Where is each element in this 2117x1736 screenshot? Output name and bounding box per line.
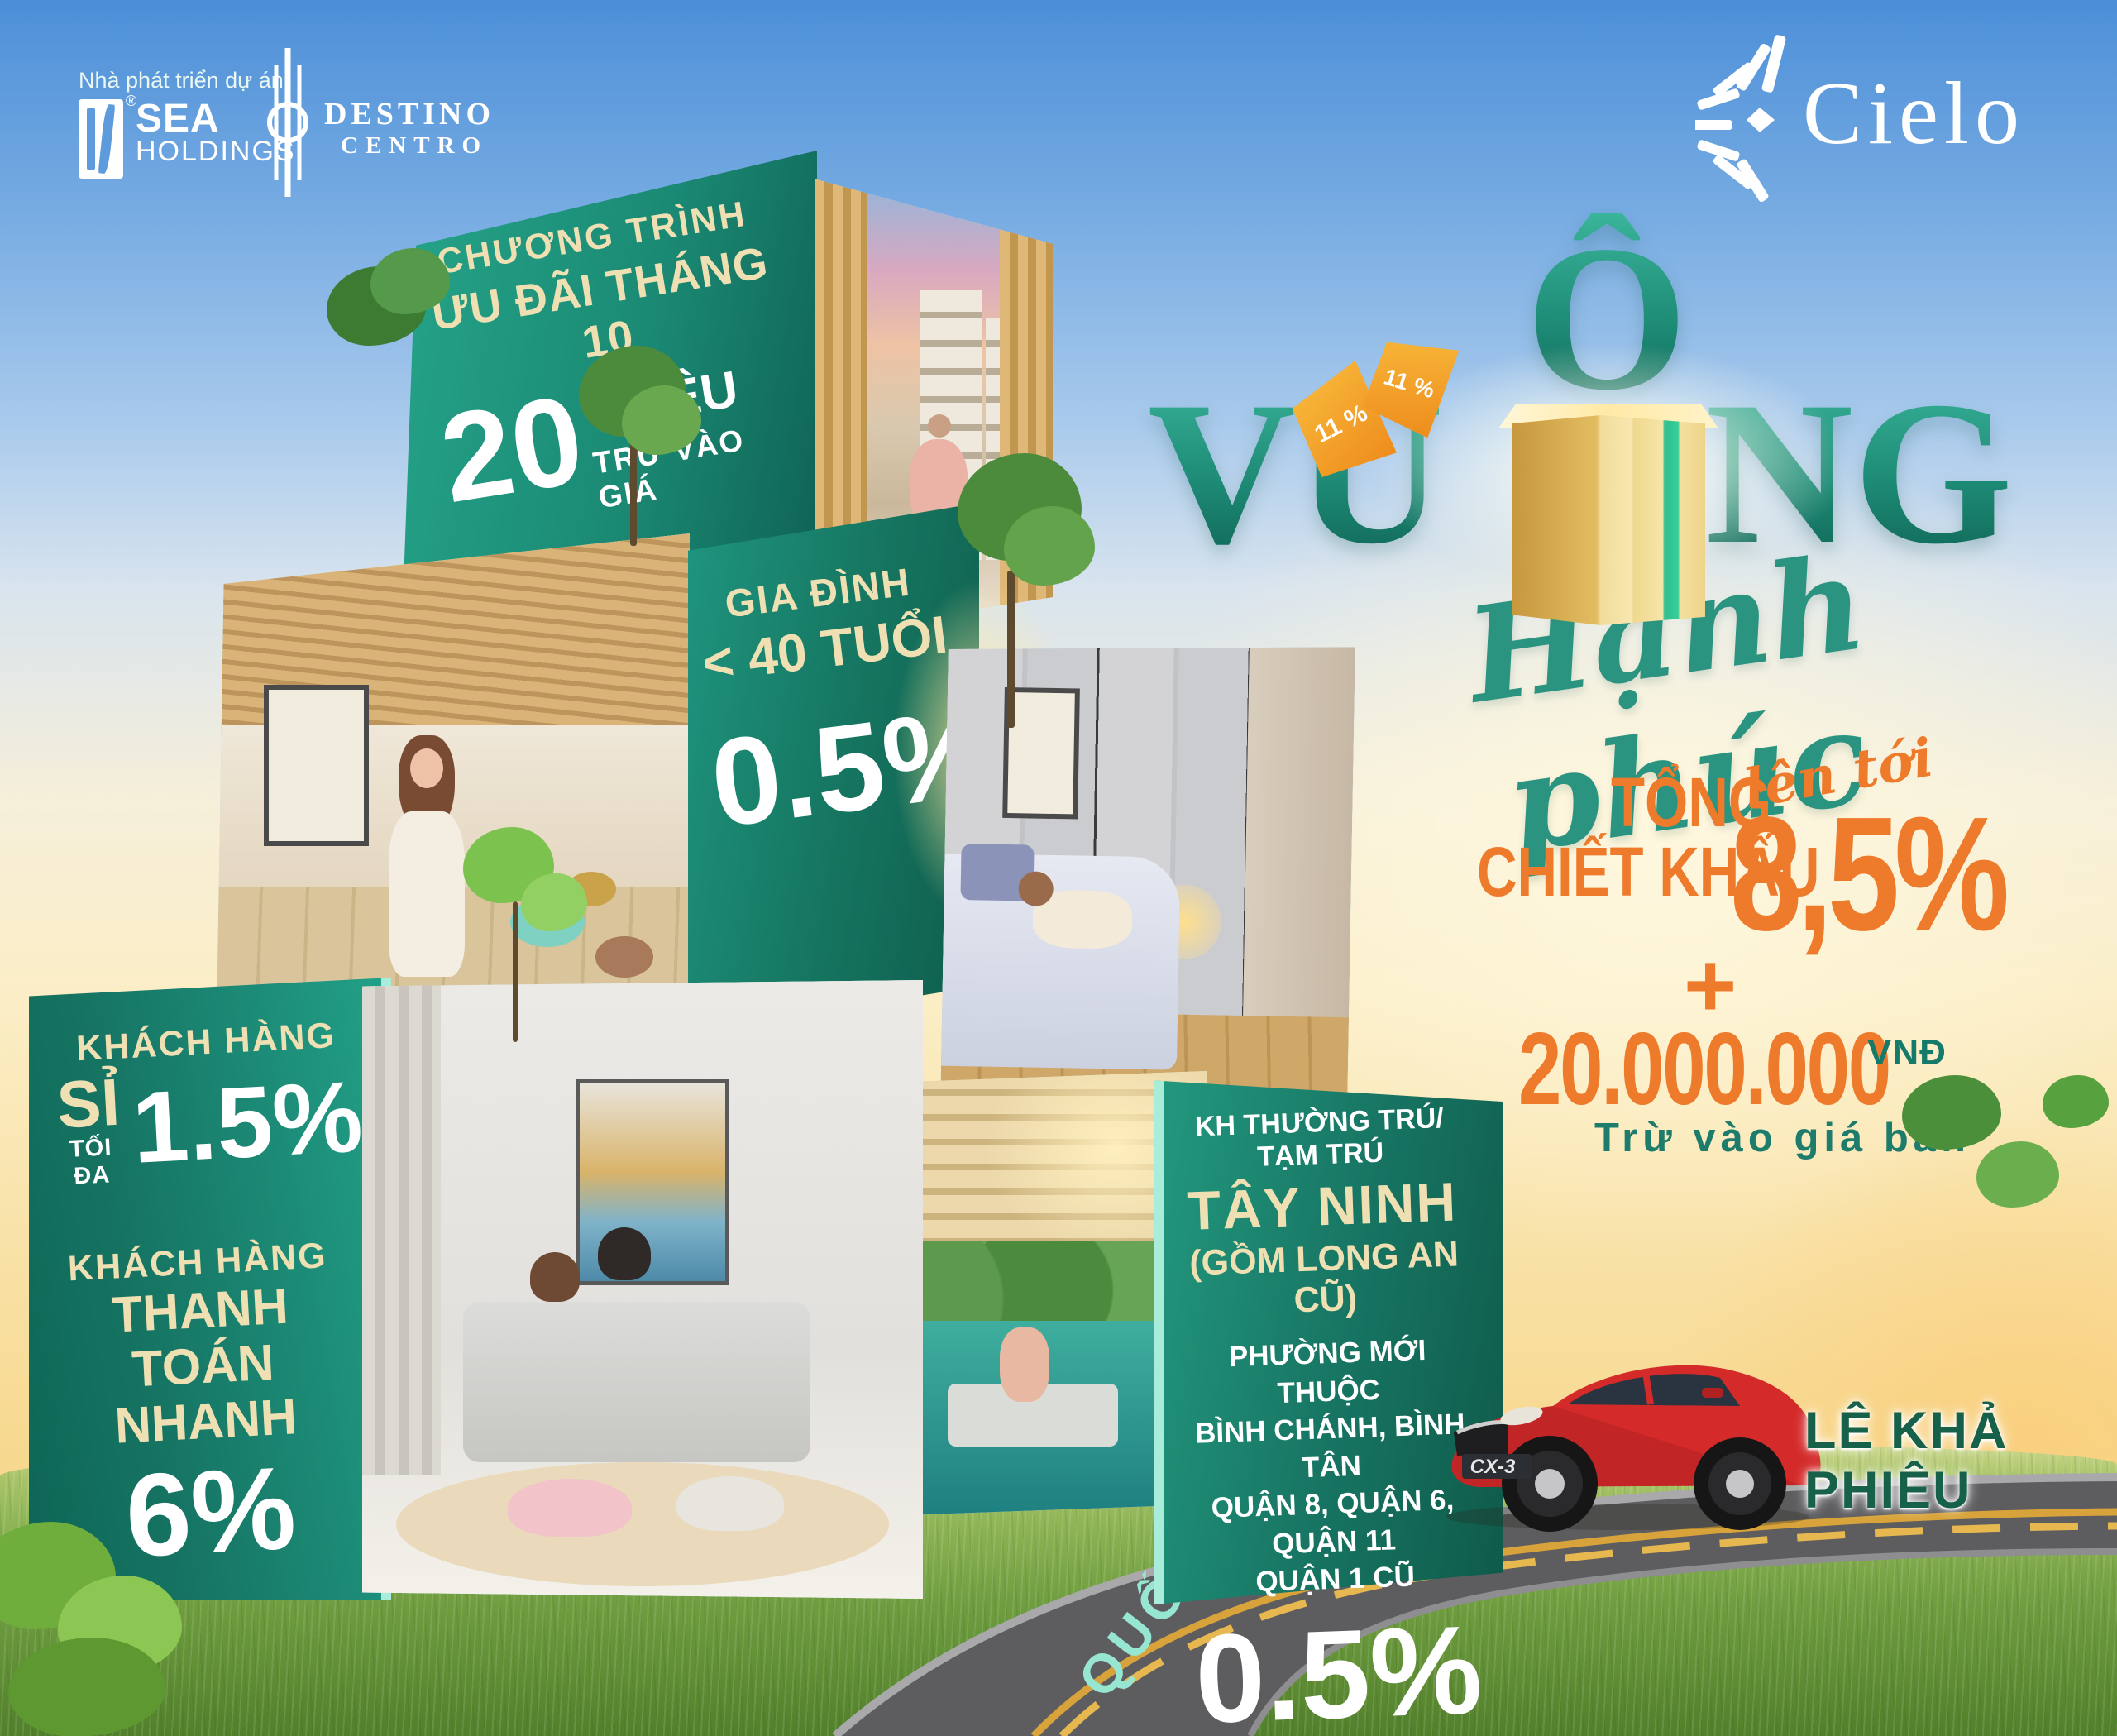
- sapling-trunk: [513, 901, 518, 1042]
- bedroom-photo: [940, 640, 1355, 1111]
- rug: [396, 1462, 890, 1586]
- son-figure: [676, 1476, 784, 1531]
- red-car: [1429, 1308, 1826, 1540]
- car-model-badge: CX-3: [1457, 1456, 1528, 1479]
- promo-box-family-text: GIA ĐÌNH < 40 TUỔI 0.5%: [688, 554, 974, 845]
- fast-payment-line2: THANH TOÁN: [58, 1275, 345, 1401]
- living-curtain: [362, 980, 441, 1475]
- tree-trunk: [1007, 571, 1015, 728]
- developer-label: Nhà phát triển dự án: [79, 68, 284, 93]
- promo-poster: Nhà phát triển dự án ® SEA HOLDINGS DEST…: [0, 0, 2117, 1736]
- woman-with-laptop: [377, 735, 476, 983]
- wholesale-percent: 1.5%: [130, 1072, 364, 1174]
- destino-subname: CENTRO: [341, 132, 488, 160]
- sea-holdings-logo-icon: [79, 99, 123, 179]
- street-name-label: LÊ KHẢ PHIÊU: [1804, 1401, 2117, 1520]
- destino-centro-logo-icon: [266, 48, 309, 197]
- family-percent: 0.5%: [705, 691, 974, 846]
- destino-name: DESTINO: [324, 96, 495, 132]
- lobby-photo: [217, 533, 690, 1038]
- father-figure: [598, 1227, 651, 1280]
- cielo-logo-icon: [1695, 35, 1794, 204]
- wholesale-line2: SỈ: [55, 1071, 121, 1137]
- october-amount: 20: [434, 383, 590, 517]
- pouf: [595, 936, 653, 978]
- wholesale-text: KHÁCH HÀNG SỈ TỐI ĐA 1.5%: [69, 1015, 350, 1190]
- sofa: [463, 1302, 810, 1462]
- fast-payment-text: KHÁCH HÀNG THANH TOÁN NHANH 6%: [56, 1235, 354, 1579]
- lobby-poster: [264, 685, 368, 846]
- mother-figure: [530, 1252, 580, 1302]
- woman-poolside: [1000, 1327, 1049, 1402]
- residence-line1: KH THƯỜNG TRÚ/ TẠM TRÚ: [1170, 1102, 1470, 1177]
- living-room-photo: [362, 980, 923, 1599]
- cielo-name: Cielo: [1803, 63, 2025, 165]
- daughter-figure: [508, 1479, 632, 1537]
- residence-line2: TÂY NINH: [1173, 1169, 1472, 1243]
- woman-reading: [1033, 889, 1133, 949]
- wholesale-line3: TỐI ĐA: [59, 1134, 124, 1192]
- residence-percent: 0.5%: [1188, 1606, 1489, 1736]
- sea-holdings-name: SEA: [136, 96, 220, 141]
